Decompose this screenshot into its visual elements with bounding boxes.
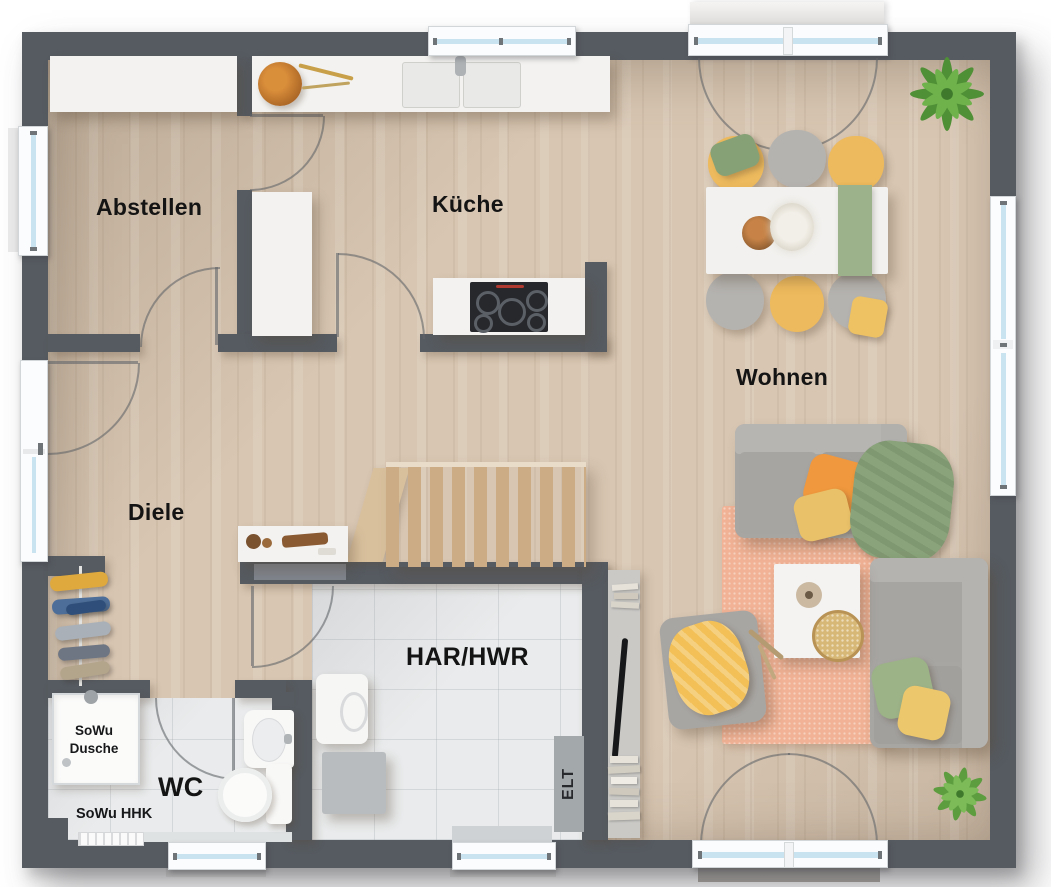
terrace-door-top (688, 24, 888, 56)
dining-chair (768, 130, 826, 188)
window-abstellen (18, 126, 48, 256)
room-label-abstellen: Abstellen (96, 194, 202, 221)
sofa-seat (874, 582, 962, 662)
elt-label: ELT (560, 768, 578, 800)
sink-basin-right (463, 62, 521, 108)
shower-drain (62, 758, 71, 767)
wall-abstellen-diele-right (218, 334, 337, 352)
har-door-recess (254, 564, 346, 580)
abstellen-door-leaf (215, 267, 218, 345)
window-glass (31, 135, 36, 247)
towel-radiator (78, 832, 144, 846)
door-mullion (784, 842, 794, 868)
window-glass (460, 854, 548, 859)
entrance-door-leaf (48, 361, 138, 364)
cooktop-controls (496, 285, 524, 288)
wall-kueche-island (420, 334, 607, 352)
label-sowu-hhk: SoWu HHK (76, 806, 152, 822)
room-label-diele: Diele (128, 499, 184, 526)
decor-small-item (318, 548, 336, 555)
wall-wc-corner-stub (48, 818, 68, 840)
room-label-har-hwr: HAR/HWR (406, 643, 529, 672)
har-door-leaf (251, 586, 254, 666)
dryer-box (322, 752, 386, 814)
decor-pinecone-2 (262, 538, 272, 548)
wc-door-leaf (232, 698, 235, 778)
table-flowers (770, 203, 814, 251)
vase-center (805, 591, 813, 599)
french-door-bottom (692, 840, 888, 868)
cooktop (470, 282, 548, 332)
window-glass (1001, 205, 1006, 339)
entrance-door (20, 360, 48, 562)
electrical-panel: ELT (554, 736, 584, 832)
window-wohnen-right (990, 196, 1016, 496)
window-glass (176, 854, 258, 859)
sofa-backrest (962, 558, 988, 748)
window-kueche (428, 26, 576, 56)
dining-chair (770, 276, 824, 332)
staircase (386, 462, 586, 567)
room-label-wohnen: Wohnen (736, 364, 828, 391)
plant-icon (903, 52, 991, 136)
wall-abstellen-kueche-top (237, 60, 252, 116)
table-runner (838, 185, 872, 276)
door-handle (38, 443, 43, 455)
wall-har-wohnen (582, 562, 608, 840)
wc-heater-strip (142, 832, 292, 842)
basin-faucet (284, 734, 292, 744)
floor-plan: ELT (0, 0, 1051, 887)
decor-pinecone (246, 534, 261, 549)
burner-4 (526, 290, 548, 312)
basin-bowl (252, 718, 286, 762)
burner-1 (476, 291, 500, 315)
abstellen-counter (50, 56, 237, 112)
shower-head-icon (84, 690, 98, 704)
plant-bottom-right (928, 762, 992, 826)
dining-chair (706, 272, 764, 330)
har-window-alcove (452, 826, 552, 842)
label-sowu-dusche: SoWu Dusche (54, 722, 134, 757)
dining-chair (828, 136, 884, 192)
sink-basin-left (402, 62, 460, 108)
room-label-kueche: Küche (432, 191, 504, 218)
burner-2 (474, 314, 493, 333)
sideboard (238, 526, 348, 562)
window-wc (168, 842, 266, 870)
decor-wood-plank (282, 532, 329, 548)
window-har (452, 842, 556, 870)
room-label-wc: WC (158, 772, 204, 803)
blanket-green (846, 437, 958, 565)
burner-3 (498, 298, 526, 326)
wall-abstellen-kueche (237, 190, 252, 336)
door-mullion (783, 27, 793, 55)
window-glass (1001, 353, 1006, 487)
washing-machine (316, 674, 368, 744)
burner-5 (527, 313, 546, 332)
door-glass (32, 457, 36, 553)
plant-icon (928, 762, 992, 826)
kueche-door-leaf (336, 253, 339, 337)
label-sowu-dusche-line2: Dusche (54, 740, 134, 758)
gold-tray (812, 610, 864, 662)
label-sowu-dusche-line1: SoWu (54, 722, 134, 740)
tall-cabinet (252, 192, 312, 336)
fruit-bowl (258, 62, 302, 106)
wash-basin (244, 710, 294, 768)
console-books-bottom (608, 756, 642, 838)
sink-faucet (455, 56, 466, 76)
kueche-top-door-leaf (250, 114, 323, 117)
console-books-top (611, 584, 641, 628)
washer-door-ring (340, 692, 368, 732)
toilet-bowl (218, 768, 272, 822)
plant-top-right (903, 52, 991, 136)
napkin-yellow (847, 295, 889, 339)
wall-abstellen-diele-left (48, 334, 140, 352)
wall-island-return (585, 262, 607, 352)
